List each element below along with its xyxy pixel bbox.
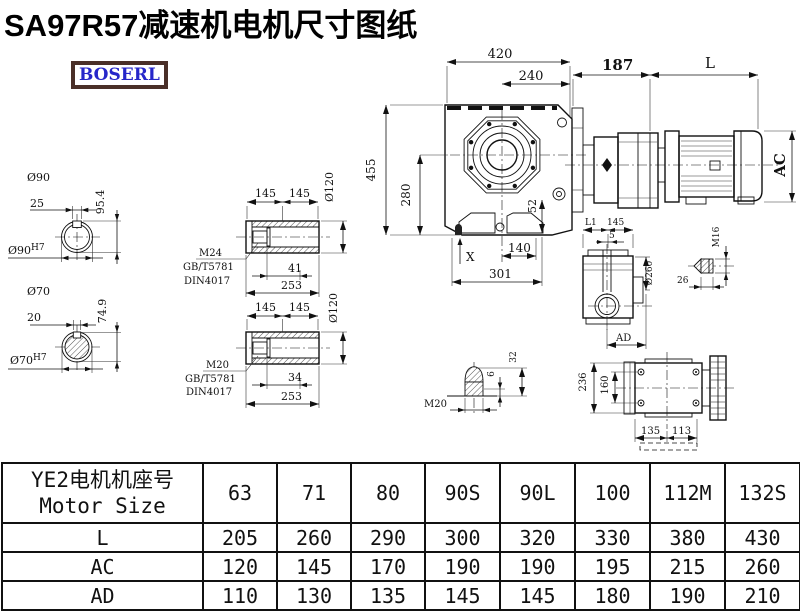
table-row: L 205 260 290 300 320 330 380 430: [2, 523, 800, 552]
dim-bore90: Ø90H7: [8, 243, 45, 257]
gearbox-side-view-ad: L1 145 5 Ø260 AD: [583, 218, 655, 349]
header-cn: YE2电机机座号: [3, 467, 202, 493]
table-cell: 320: [500, 523, 575, 552]
row-label: AD: [2, 581, 203, 610]
table-header-label: YE2电机机座号 Motor Size: [2, 463, 203, 523]
motor-size-table: YE2电机机座号 Motor Size 63 71 80 90S 90L 100…: [1, 462, 800, 611]
dim-280: 280: [399, 184, 413, 207]
table-cell: 71: [277, 463, 351, 523]
dim-dia120a: Ø120: [323, 172, 336, 202]
table-cell: 90L: [500, 463, 575, 523]
dim-301: 301: [489, 267, 512, 281]
dim-253a: 253: [281, 279, 302, 292]
table-cell: 180: [575, 581, 650, 610]
table-row: AC 120 145 170 190 190 195 215 260: [2, 552, 800, 581]
table-cell: 215: [650, 552, 725, 581]
table-cell: 190: [500, 552, 575, 581]
table-cell: 380: [650, 523, 725, 552]
header-en: Motor Size: [3, 493, 202, 519]
technical-drawing: Ø90 25 95.4 Ø90H7 Ø70 20 74.9: [0, 30, 800, 462]
dim-145e: 145: [607, 218, 624, 228]
table-cell: 300: [425, 523, 500, 552]
label-gbt-2: GB/T5781: [185, 374, 236, 385]
label-din-1: DIN4017: [184, 276, 230, 287]
dim-145d: 145: [289, 301, 310, 314]
dim-L1: L1: [585, 218, 597, 228]
label-din-2: DIN4017: [186, 387, 232, 398]
dim-135: 135: [641, 426, 660, 437]
dim-145b: 145: [289, 187, 310, 200]
table-cell: 135: [351, 581, 425, 610]
dim-145a: 145: [255, 187, 276, 200]
dim-M16: M16: [712, 226, 722, 247]
table-cell: 80: [351, 463, 425, 523]
table-cell: 100: [575, 463, 650, 523]
table-cell: 112M: [650, 463, 725, 523]
table-cell: 195: [575, 552, 650, 581]
dim-160: 160: [600, 375, 611, 394]
dim-32: 32: [509, 351, 519, 362]
hollow-shaft-view-m20: 145 145 Ø120 M20 GB/T5781 DIN4017 34 253: [185, 293, 347, 408]
dim-AD: AD: [615, 333, 631, 344]
table-cell: 430: [725, 523, 800, 552]
label-m24: M24: [199, 248, 222, 259]
table-cell: 190: [425, 552, 500, 581]
table-cell: 63: [203, 463, 277, 523]
label-x: X: [466, 250, 475, 264]
table-cell: 145: [425, 581, 500, 610]
motor-side-view: 187 L AC: [565, 54, 796, 212]
table-cell: 290: [351, 523, 425, 552]
table-cell: 145: [500, 581, 575, 610]
dim-420: 420: [488, 47, 513, 62]
shaft-section-90: Ø90 25 95.4 Ø90H7: [8, 171, 121, 264]
dim-240: 240: [519, 69, 544, 84]
table-header-row: YE2电机机座号 Motor Size 63 71 80 90S 90L 100…: [2, 463, 800, 523]
dim-dia70: Ø70: [27, 285, 50, 298]
table-cell: 260: [725, 552, 800, 581]
table-cell: 132S: [725, 463, 800, 523]
dim-253b: 253: [281, 390, 302, 403]
dim-52: 52: [526, 199, 539, 213]
dim-AC: AC: [771, 153, 789, 178]
table-cell: 190: [650, 581, 725, 610]
dim-113: 113: [672, 426, 691, 437]
table-cell: 145: [277, 552, 351, 581]
gearbox-top-view: 236 160 135 113: [578, 352, 734, 450]
dim-bore70: Ø70H7: [10, 353, 47, 367]
table-cell: 130: [277, 581, 351, 610]
dim-26: 26: [677, 276, 689, 286]
table-cell: 120: [203, 552, 277, 581]
dim-dia90: Ø90: [27, 171, 50, 184]
hollow-shaft-view-m24: 145 145 Ø120 M24 GB/T5781 DIN4017 41 253: [183, 172, 347, 297]
label-gbt-1: GB/T5781: [183, 262, 234, 273]
dim-236: 236: [578, 372, 589, 391]
dim-key25: 25: [30, 197, 44, 210]
dim-dia120b: Ø120: [327, 293, 340, 323]
dim-key20: 20: [27, 311, 41, 324]
label-m20: M20: [206, 360, 229, 371]
table-cell: 210: [725, 581, 800, 610]
dim-95-4: 95.4: [94, 190, 107, 215]
shaft-section-70: Ø70 20 74.9 Ø70H7: [8, 285, 121, 373]
row-label: L: [2, 523, 203, 552]
dim-140: 140: [508, 241, 531, 255]
dim-455: 455: [364, 159, 378, 182]
dim-6: 6: [487, 371, 497, 377]
dim-74-9: 74.9: [96, 299, 109, 324]
table-cell: 330: [575, 523, 650, 552]
row-label: AC: [2, 552, 203, 581]
table-cell: 110: [203, 581, 277, 610]
table-row: AD 110 130 135 145 145 180 190 210: [2, 581, 800, 610]
dim-M20b: M20: [424, 399, 447, 410]
dim-L: L: [705, 54, 715, 72]
dim-187: 187: [602, 56, 633, 74]
plug-detail-m16: M16 26: [677, 226, 735, 290]
table-cell: 90S: [425, 463, 500, 523]
plug-detail-m20: M20 6 32: [424, 351, 527, 416]
dim-145c: 145: [255, 301, 276, 314]
drawing-page: SA97R57减速机电机尺寸图纸 BOSERL Ø90 25 95.4: [0, 0, 800, 613]
gearbox-front-view: 420 240 455 280 52 140 301 X: [364, 47, 588, 286]
table-cell: 260: [277, 523, 351, 552]
dim-5: 5: [609, 231, 615, 241]
table-cell: 170: [351, 552, 425, 581]
table-cell: 205: [203, 523, 277, 552]
